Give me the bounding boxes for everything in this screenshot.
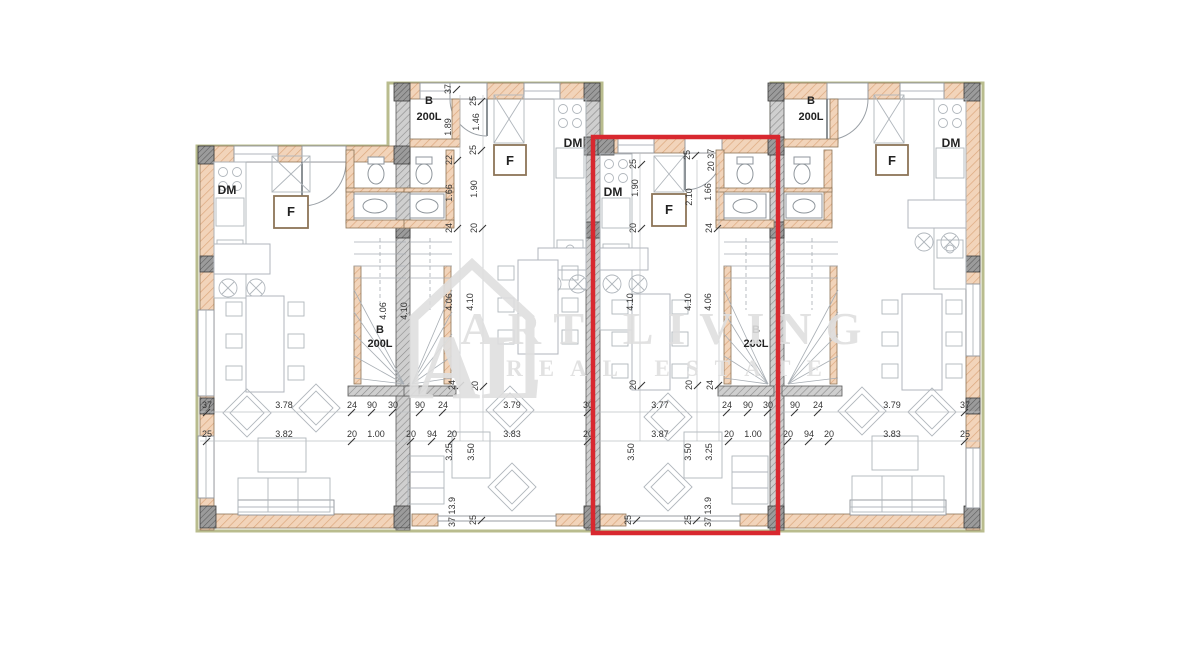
plan-label: 3.79: [883, 400, 901, 410]
plan-label: 37: [960, 400, 970, 410]
floor-plan-canvas: 373.7824903090243.79303.7724903090243.79…: [0, 0, 1200, 647]
dim-tick: [389, 409, 396, 416]
plan-label: 37 13.9: [703, 497, 713, 527]
dishwasher-icon: [602, 198, 630, 228]
plan-label: 200L: [798, 111, 823, 123]
plan-label: DM: [564, 136, 583, 150]
plan-label: 24: [704, 223, 714, 233]
sofa: [408, 456, 444, 504]
plan-label: 24: [347, 400, 357, 410]
dim-tick: [725, 438, 732, 445]
plan-label: 30: [763, 400, 773, 410]
armchair: [292, 384, 340, 432]
bar-stool-icon: [941, 233, 959, 251]
plan-label: B: [807, 95, 815, 107]
plan-label: 25: [683, 515, 693, 525]
dim-tick: [348, 438, 355, 445]
plan-label: DM: [604, 185, 623, 199]
toilet-icon: [368, 157, 384, 184]
plan-label: 3.78: [275, 400, 293, 410]
plan-label: F: [287, 204, 295, 219]
plan-label: F: [665, 202, 673, 217]
sink-icon: [354, 194, 396, 218]
dining-table: [246, 296, 284, 392]
plan-label: 20: [724, 429, 734, 439]
plan-label: B: [425, 95, 433, 107]
plan-label: 24: [444, 223, 454, 233]
plan-label: F: [888, 153, 896, 168]
plan-label: 1.00: [744, 429, 762, 439]
plan-label: 90: [367, 400, 377, 410]
dim-tick: [825, 438, 832, 445]
plan-label: 1.89: [443, 118, 453, 136]
armchair: [223, 389, 271, 437]
plan-label: 1.00: [367, 429, 385, 439]
plan-label: 90: [743, 400, 753, 410]
dim-tick: [744, 409, 751, 416]
plan-label: 3.83: [883, 429, 901, 439]
plan-label: 94: [804, 429, 814, 439]
dim-tick: [694, 382, 701, 389]
bar-stool-icon: [247, 279, 265, 297]
sofa: [732, 456, 768, 504]
toilet-icon: [416, 157, 432, 184]
plan-label: 1.66: [703, 183, 713, 201]
plan-label: 25: [468, 515, 478, 525]
plan-label: DM: [218, 183, 237, 197]
armchair: [838, 387, 886, 435]
plan-label: 3.25: [704, 443, 714, 461]
plan-label: 3.25: [444, 443, 454, 461]
sink-icon: [724, 194, 766, 218]
bar-stool-icon: [915, 233, 933, 251]
plan-label: 25: [202, 429, 212, 439]
plan-label: 4.06: [378, 302, 388, 320]
plan-label: 4.06: [444, 293, 454, 311]
plan-label: 20: [469, 223, 479, 233]
plan-label: 3.83: [503, 429, 521, 439]
dim-tick: [368, 409, 375, 416]
plan-label: 25: [960, 429, 970, 439]
plan-label: 1.90: [469, 180, 479, 198]
coffee-table: [258, 438, 306, 472]
plan-label: 20: [347, 429, 357, 439]
plan-label: B: [376, 324, 384, 336]
dishwasher-icon: [936, 148, 964, 178]
toilet-icon: [737, 157, 753, 184]
dim-tick: [784, 438, 791, 445]
plan-label: 37: [202, 400, 212, 410]
plan-label: 4.10: [399, 302, 409, 320]
plan-label: 20: [824, 429, 834, 439]
dim-tick: [479, 225, 486, 232]
plan-label: 37 13.9: [447, 497, 457, 527]
plan-label: 20: [783, 429, 793, 439]
dim-tick: [638, 225, 645, 232]
plan-label: 90: [790, 400, 800, 410]
watermark-line1: ART LIVING: [461, 303, 876, 354]
plan-label: 3.50: [466, 443, 476, 461]
dining-table: [902, 294, 942, 390]
plan-label: 2.10: [684, 188, 694, 206]
bar-stool-icon: [219, 279, 237, 297]
plan-label: F: [506, 153, 514, 168]
plan-label: 3.87: [651, 429, 669, 439]
plan-label: 20: [406, 429, 416, 439]
plan-label: 25: [468, 96, 478, 106]
plan-label: 200L: [416, 111, 441, 123]
plan-label: 22: [444, 155, 454, 165]
dim-tick: [723, 409, 730, 416]
plan-label: 25: [682, 150, 692, 160]
armchair: [488, 463, 536, 511]
dim-tick: [814, 409, 821, 416]
dim-tick: [638, 161, 645, 168]
dim-tick: [348, 409, 355, 416]
plan-label: 200L: [367, 338, 392, 350]
dishwasher-icon: [216, 198, 244, 226]
sink-icon: [786, 194, 822, 218]
plan-label: 24: [813, 400, 823, 410]
plan-label: 30: [388, 400, 398, 410]
plan-label: 24: [705, 380, 715, 390]
watermark-line2: REAL ESTATE: [506, 356, 838, 381]
plan-label: 25: [468, 145, 478, 155]
plan-label: 1.46: [471, 113, 481, 131]
plan-label: 94: [427, 429, 437, 439]
plan-label: 25: [623, 515, 633, 525]
dim-tick: [428, 438, 435, 445]
plan-label: 20: [628, 380, 638, 390]
dim-tick: [478, 147, 485, 154]
toilet-icon: [794, 157, 810, 184]
armchair: [644, 463, 692, 511]
plan-label: 37: [443, 84, 453, 94]
plan-label: 20: [684, 380, 694, 390]
plan-label: 20: [447, 429, 457, 439]
dim-tick: [805, 438, 812, 445]
dim-tick: [791, 409, 798, 416]
bar-stool-icon: [603, 275, 621, 293]
floor-plan-page: 373.7824903090243.79303.7724903090243.79…: [0, 0, 1200, 647]
plan-label: 20: [628, 223, 638, 233]
sink-icon: [410, 194, 444, 218]
plan-label: 3.50: [683, 443, 693, 461]
plan-label: 20 37: [706, 149, 716, 172]
plan-label: 1.90: [630, 179, 640, 197]
dishwasher-icon: [556, 148, 584, 178]
plan-label: 1.66: [444, 184, 454, 202]
plan-label: 24: [722, 400, 732, 410]
plan-label: DM: [942, 136, 961, 150]
plan-label: 3.82: [275, 429, 293, 439]
plan-label: 3.77: [651, 400, 669, 410]
plan-label: 3.50: [626, 443, 636, 461]
plan-label: 25: [628, 159, 638, 169]
